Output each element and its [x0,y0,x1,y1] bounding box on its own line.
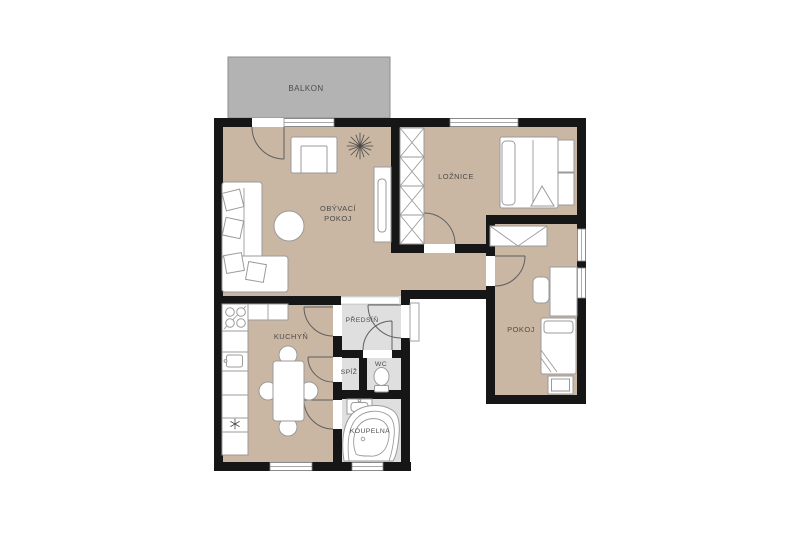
kitchen-hall-door-gap [333,305,342,336]
hallway-opening [341,296,399,305]
bath-sink-tap [358,399,361,402]
sofa-pillow-1 [222,189,244,211]
label-room: POKOJ [507,325,535,334]
room-pillow [544,321,573,333]
sofa-pillow-2 [222,217,243,238]
wall-bedroom-room [486,215,586,224]
label-bedroom: LOŽNICE [438,172,474,181]
wall-room-bottom [486,395,586,404]
toilet-tank [375,386,389,393]
entry-threshold [410,303,419,341]
label-living-room-line2: POKOJ [324,214,352,223]
label-kitchen: KUCHYŇ [274,332,308,341]
dining-table [273,361,304,421]
coffee-table [274,211,304,241]
floor-plan-svg: BALKON OBÝVACÍ POKOJ LOŽNICE POKOJ KUCHY… [0,0,800,533]
entry-door-gap [401,305,410,338]
bedroom-door-gap [424,244,455,253]
toilet-bowl [374,368,389,386]
plant-icon [347,133,373,159]
label-living-room-line1: OBÝVACÍ [320,204,356,213]
label-wc: WC [375,361,387,368]
wc-door-gap [363,350,392,358]
kitchen-sink [224,355,242,367]
label-balcony: BALKON [288,84,323,93]
wall-corridor-bottom [401,290,495,299]
wall-living-bedroom [391,118,400,253]
sofa-pillow-4 [246,262,267,283]
kitchen-bath-door-gap [333,400,342,429]
nightstand-lower [558,173,574,205]
label-bathroom: KOUPELNA [350,428,390,435]
label-pantry: SPÍŽ [341,367,358,376]
room-side-table-inner [552,379,570,391]
tv [378,179,386,232]
wc-fixtures [374,368,389,393]
armchair-seat [301,146,327,173]
desk [550,267,577,316]
label-hallway: PŘEDSÍŇ [345,315,378,324]
floor-plan-page: BALKON OBÝVACÍ POKOJ LOŽNICE POKOJ KUCHY… [0,0,800,533]
sofa-pillow-3 [224,253,245,274]
balcony-door-gap [252,118,284,127]
wall-wc-bottom [333,390,410,399]
nightstand-upper [558,140,574,172]
room-wardrobe [490,226,547,246]
corridor-floor [391,252,486,296]
bedroom-pillow [502,141,515,205]
desk-chair [533,277,549,303]
room-door-gap [486,256,495,286]
